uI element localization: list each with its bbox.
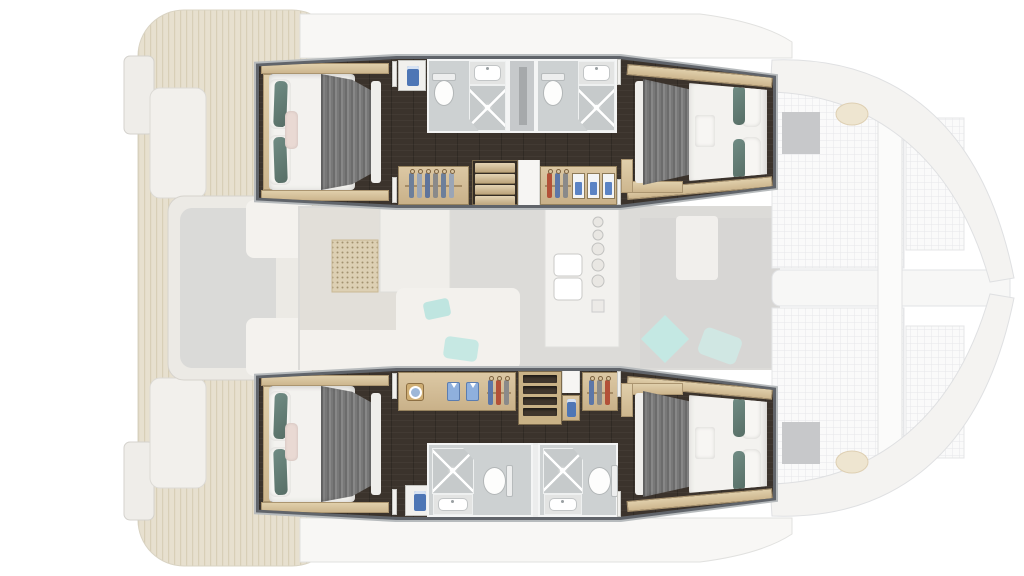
hanger-icon [504, 380, 509, 405]
hanger-icon [425, 173, 430, 198]
cabin-door-wall [392, 177, 397, 203]
pillow-teal [733, 139, 745, 179]
cabin-door-wall [392, 373, 397, 399]
ghost-galley [545, 205, 619, 347]
hanger-icon [547, 173, 552, 198]
bed-tray [695, 115, 715, 147]
folded-shirt-icon [466, 382, 479, 401]
vanity [544, 494, 582, 515]
cabin-door-wall [392, 489, 397, 515]
lower-hull-suite [256, 368, 776, 520]
sink-icon [583, 65, 610, 81]
shower-icon [543, 448, 583, 494]
corridor-floor [259, 59, 773, 205]
hanger-icon [449, 173, 454, 198]
pillow-teal [733, 397, 745, 437]
sink-icon [438, 498, 468, 511]
bathroom-1 [427, 59, 508, 133]
forward-cabin [621, 59, 773, 205]
folded-shirt-icon [447, 382, 460, 401]
sink-icon [554, 254, 582, 276]
companionway-gap [518, 160, 540, 205]
vanity [469, 61, 506, 85]
towel-icon [575, 182, 582, 195]
towel-cubby [572, 173, 585, 199]
mattress-foot [371, 393, 381, 495]
aft-cabin [259, 371, 397, 517]
hanger-icon [441, 173, 446, 198]
bathroom-1 [427, 443, 533, 517]
toilet-icon [541, 73, 565, 111]
deck-hatch [782, 112, 820, 154]
sink-icon [474, 65, 501, 81]
pillow-blush [285, 423, 298, 461]
hanger-icon [605, 380, 610, 405]
wardrobe-cubbies [540, 166, 617, 205]
towel-cubby [602, 173, 615, 199]
bed-blanket [321, 74, 373, 190]
desk [621, 159, 633, 193]
towel-icon [605, 182, 612, 195]
upper-hull-suite [256, 56, 776, 208]
bed-blanket [643, 391, 691, 497]
washing-machine-icon [406, 383, 424, 401]
mattress-foot [371, 81, 381, 183]
ghost-saloon [298, 205, 780, 370]
hanger-icon [597, 380, 602, 405]
shower-icon [469, 85, 506, 131]
towel-icon [414, 491, 426, 511]
pillow-teal [733, 451, 745, 491]
hanger-icon [589, 380, 594, 405]
shelf-unit [518, 371, 562, 425]
vanity [578, 61, 615, 85]
wardrobe-hangers [398, 166, 469, 205]
sink-icon [554, 278, 582, 300]
towel-closet [398, 60, 426, 91]
forward-crossbeam [878, 94, 902, 482]
corridor-floor [259, 371, 773, 517]
perforated-cabinet [332, 240, 378, 292]
technical-space [508, 59, 536, 133]
companionway-gap [562, 371, 580, 393]
hanger-icon [433, 173, 438, 198]
shower-icon [432, 448, 474, 494]
bed-blanket [321, 386, 373, 502]
wardrobe-washer [398, 372, 516, 411]
deck-hatch [782, 422, 820, 464]
hanger-icon [488, 380, 493, 405]
desk [621, 383, 633, 417]
double-bed [635, 75, 767, 189]
hanger-icon [409, 173, 414, 198]
towel-icon [567, 399, 576, 417]
cabin-door-wall [392, 61, 397, 87]
vanity [433, 494, 473, 515]
towel-icon [407, 66, 419, 86]
double-bed [635, 387, 767, 501]
toilet-icon [432, 73, 456, 111]
hanger-icon [496, 380, 501, 405]
hanger-icon [563, 173, 568, 198]
pillow-teal [733, 85, 745, 125]
winch-pad [836, 451, 868, 473]
saloon-table [380, 208, 450, 292]
hanger-icon [555, 173, 560, 198]
bathroom-2 [538, 443, 618, 517]
toilet-icon [483, 461, 513, 501]
towel-cubby [587, 173, 600, 199]
ghost-foredeck [770, 60, 1014, 516]
toilet-icon [588, 461, 618, 501]
aft-cabin [259, 59, 397, 205]
bed-tray [695, 427, 715, 459]
hanger-icon [417, 173, 422, 198]
catamaran-floorplan [0, 0, 1024, 576]
towel-icon [590, 182, 597, 195]
staircase [472, 160, 518, 205]
forward-cabin [621, 371, 773, 517]
pillow-blush [285, 111, 298, 149]
towel-niche [562, 395, 580, 421]
bathroom-2 [536, 59, 617, 133]
winch-pad [836, 103, 868, 125]
sink-icon [549, 498, 577, 511]
wardrobe-hangers [582, 372, 618, 411]
bed-blanket [643, 79, 691, 185]
shower-icon [578, 85, 615, 131]
